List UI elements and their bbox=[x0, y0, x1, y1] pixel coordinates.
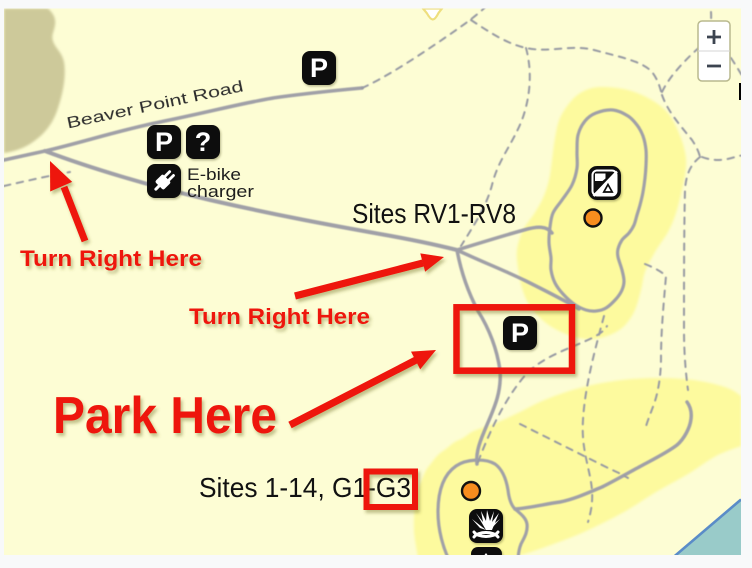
svg-text:P: P bbox=[511, 318, 529, 348]
svg-text:?: ? bbox=[195, 127, 212, 157]
svg-text:Turn Right Here: Turn Right Here bbox=[20, 246, 202, 271]
svg-text:P: P bbox=[155, 127, 173, 157]
svg-text:Sites RV1-RV8: Sites RV1-RV8 bbox=[352, 198, 516, 229]
svg-text:Sites 1-14, G1-G3: Sites 1-14, G1-G3 bbox=[199, 472, 411, 503]
svg-text:Park Here: Park Here bbox=[53, 387, 277, 445]
svg-text:P: P bbox=[310, 53, 328, 83]
svg-text:charger: charger bbox=[187, 182, 254, 201]
svg-text:Turn Right Here: Turn Right Here bbox=[189, 304, 370, 329]
